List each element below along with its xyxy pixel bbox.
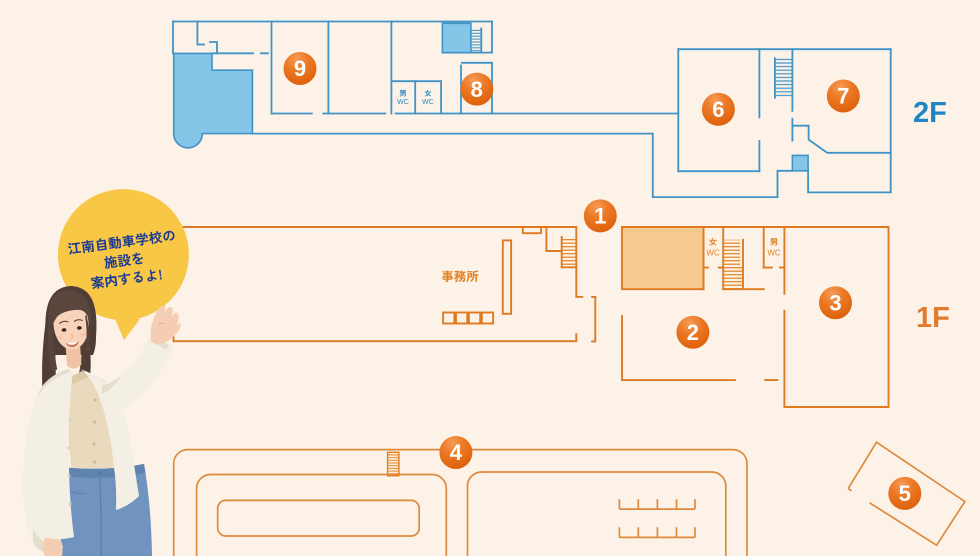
svg-text:1F: 1F <box>916 302 950 334</box>
svg-text:WC: WC <box>422 99 434 106</box>
svg-text:WC: WC <box>706 249 720 258</box>
svg-text:5: 5 <box>899 481 911 506</box>
svg-text:4: 4 <box>450 440 463 465</box>
svg-text:9: 9 <box>294 56 306 81</box>
svg-text:WC: WC <box>397 99 409 106</box>
svg-text:7: 7 <box>837 84 849 109</box>
svg-text:2F: 2F <box>913 97 947 129</box>
svg-text:2: 2 <box>687 320 699 345</box>
svg-text:3: 3 <box>829 290 841 315</box>
svg-text:8: 8 <box>471 77 483 102</box>
svg-text:1: 1 <box>594 204 606 229</box>
svg-text:WC: WC <box>767 249 781 258</box>
svg-text:6: 6 <box>712 97 724 122</box>
